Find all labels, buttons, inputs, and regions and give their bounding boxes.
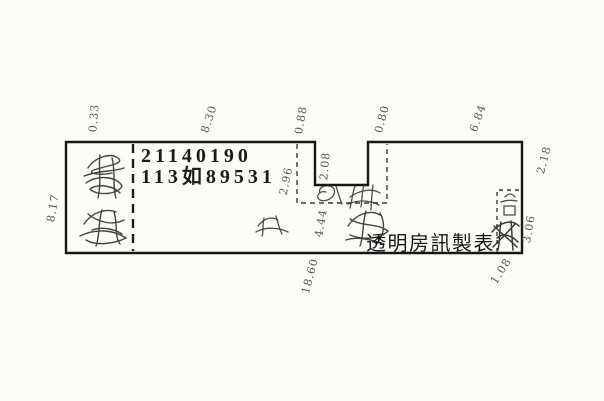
handwritten-scribble-notch-right [348, 184, 380, 210]
cadastral-plot-diagram: 21140190 113如89531 0.33 8.30 0.88 0.80 6… [0, 0, 604, 401]
dim-label-notch-depth: 2.08 [317, 151, 332, 181]
publisher-credit: 透明房訊製表 [366, 227, 495, 256]
handwritten-scribble-notch-loop [318, 186, 342, 204]
handwritten-scribble-left-upper [84, 155, 124, 198]
handwritten-scribble-left-lower [80, 210, 126, 246]
right-annex-dashed-line [497, 190, 521, 252]
dim-label-left-top: 0.33 [86, 103, 101, 133]
notch-projection-dashed-line [297, 144, 387, 203]
registration-block: 21140190 113如89531 [141, 146, 276, 188]
parcel-outline-drawing [0, 0, 604, 401]
handwritten-scribble-annex-upper [501, 194, 517, 215]
handwritten-scribble-center-left [256, 216, 288, 236]
handwritten-scribble-annex-lower [492, 221, 519, 250]
registration-number-line2: 113如89531 [141, 167, 276, 188]
registration-number-line1: 21140190 [141, 146, 276, 167]
